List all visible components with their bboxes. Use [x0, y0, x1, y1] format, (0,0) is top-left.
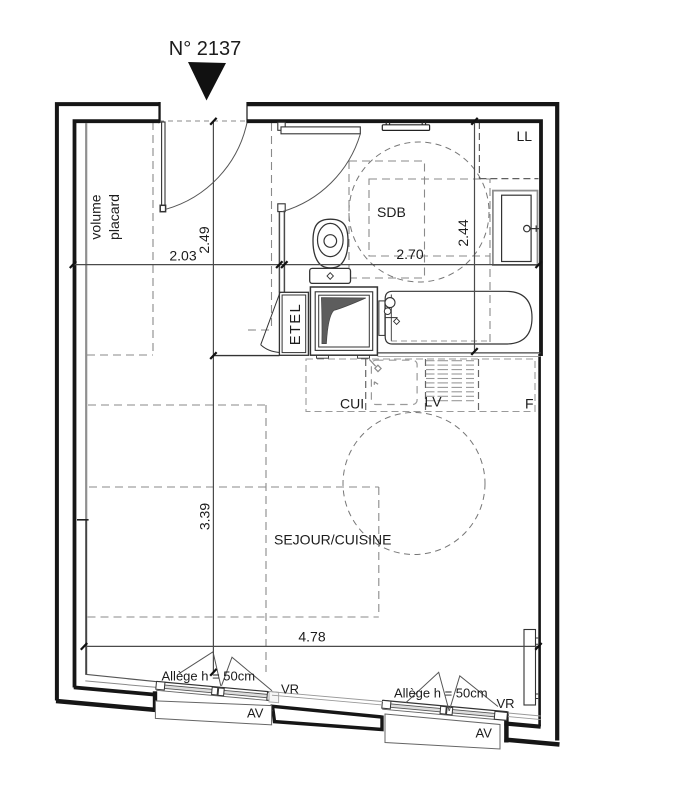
svg-text:4.78: 4.78	[298, 629, 325, 645]
svg-text:N° 2137: N° 2137	[169, 38, 242, 60]
svg-text:2.03: 2.03	[169, 248, 196, 264]
svg-text:VR: VR	[281, 682, 299, 697]
svg-text:volume: volume	[88, 194, 104, 239]
svg-text:LL: LL	[517, 128, 533, 144]
svg-text:ETEL: ETEL	[288, 303, 304, 345]
svg-text:SEJOUR/CUISINE: SEJOUR/CUISINE	[274, 532, 391, 548]
svg-text:2.70: 2.70	[396, 246, 423, 262]
svg-text:VR: VR	[497, 696, 515, 711]
svg-text:2.44: 2.44	[455, 219, 471, 246]
svg-text:Allège h = 50cm: Allège h = 50cm	[162, 669, 256, 684]
svg-text:LV: LV	[425, 394, 443, 410]
svg-text:Allège h = 50cm: Allège h = 50cm	[394, 686, 488, 701]
svg-text:2.49: 2.49	[196, 226, 212, 253]
svg-text:AV: AV	[476, 726, 493, 741]
svg-text:F: F	[525, 396, 534, 412]
svg-text:SDB: SDB	[377, 204, 406, 220]
svg-text:CUI: CUI	[340, 396, 364, 412]
svg-text:placard: placard	[106, 194, 122, 240]
svg-text:3.39: 3.39	[197, 503, 213, 530]
svg-text:AV: AV	[247, 706, 264, 721]
